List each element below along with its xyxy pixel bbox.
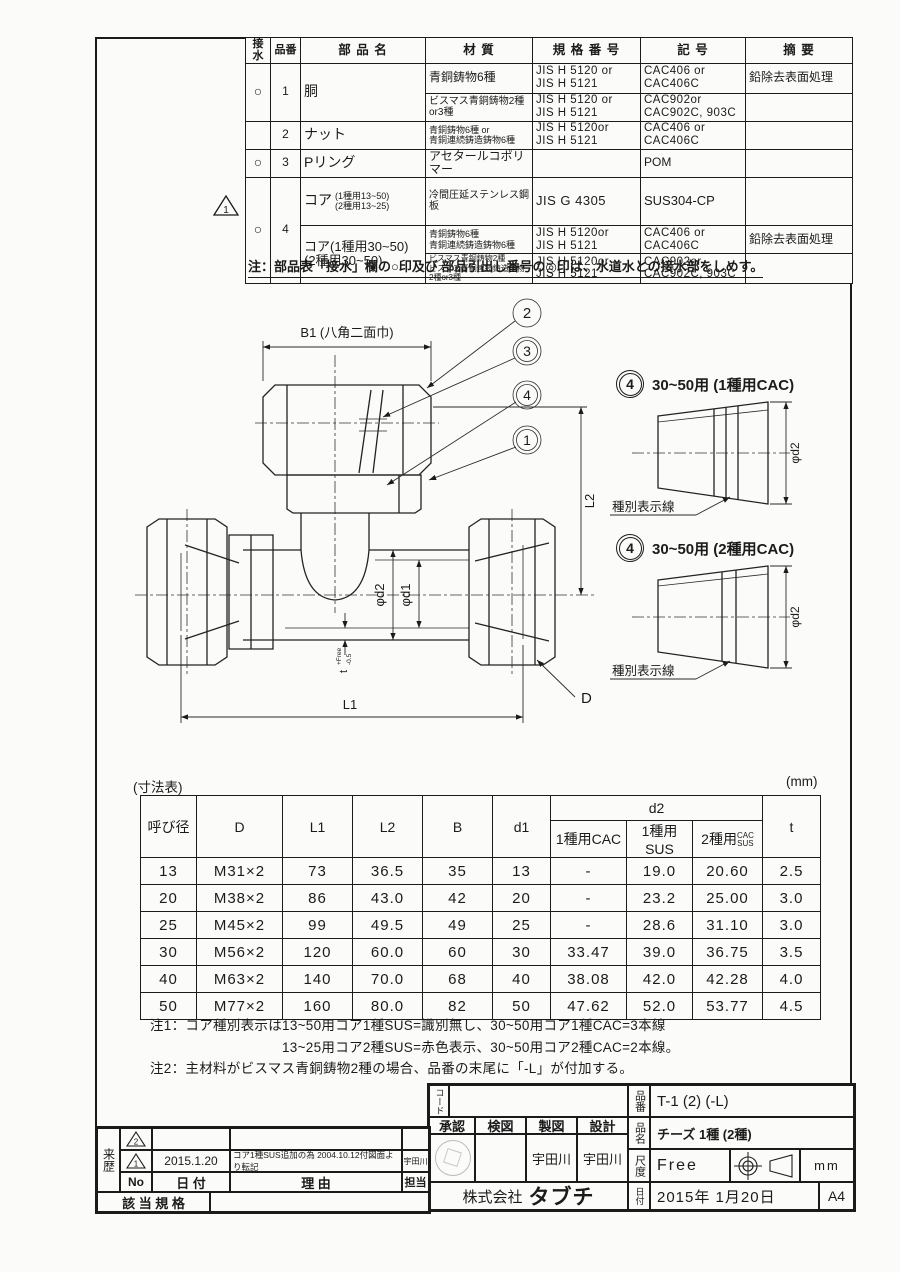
left-core-cone — [185, 545, 239, 563]
revision-tanto-cell — [402, 1128, 429, 1150]
dimension-table-unit: (mm) — [786, 774, 817, 789]
dim-table-cell: M45×2 — [197, 912, 283, 939]
dim-table-cell: 49 — [423, 912, 493, 939]
dim-table-cell: M31×2 — [197, 858, 283, 885]
phid1-label: φd1 — [398, 584, 413, 607]
dim-table-cell: 36.5 — [353, 858, 423, 885]
svg-text:4: 4 — [523, 387, 531, 403]
unit-value: mm — [800, 1149, 854, 1182]
dim-header-d1: d1 — [493, 796, 551, 858]
draft-name: 宇田川 — [526, 1134, 577, 1182]
dim-table-cell: 4.0 — [763, 966, 821, 993]
svg-text:1: 1 — [134, 1159, 139, 1168]
sheet-size: A4 — [819, 1182, 854, 1210]
scale-label: 尺度 — [628, 1149, 650, 1182]
part-name: コア (1種用13~50) (2種用13~25) — [301, 177, 426, 226]
type-line-note: 種別表示線 — [612, 663, 675, 678]
revision-header-reason: 理 由 — [230, 1172, 402, 1192]
dim-table-cell: 20.60 — [693, 858, 763, 885]
dim-table-cell: 35 — [423, 858, 493, 885]
col-header-name: 部 品 名 — [301, 38, 426, 64]
dim-table-cell: 20 — [493, 885, 551, 912]
col-header-sym: 記 号 — [641, 38, 746, 64]
dim-table-cell: 68 — [423, 966, 493, 993]
dim-table-cell: 60.0 — [353, 939, 423, 966]
dim-table-cell: 39.0 — [627, 939, 693, 966]
dim-table-cell: 3.0 — [763, 885, 821, 912]
part-name-range: (1種用13~50) (2種用13~25) — [335, 191, 389, 212]
dim-table-cell: 33.47 — [551, 939, 627, 966]
dim-table-row: 20M38×28643.04220-23.225.003.0 — [141, 885, 821, 912]
scale-value: Free — [650, 1149, 730, 1182]
title-block: コード 品番 T-1 (2) (-L) 承認 検図 製図 設計 宇田川 宇田川 … — [427, 1083, 856, 1212]
check-value — [475, 1134, 526, 1182]
dim-table-cell: 53.77 — [693, 993, 763, 1020]
standard-number: JIS H 5120 or JIS H 5121 — [533, 93, 641, 121]
date-value: 2015年 1月20日 — [650, 1182, 819, 1210]
revision-triangle-1: 1 — [212, 194, 240, 218]
part-name: Pリング — [301, 149, 426, 177]
dim-table-cell: 40 — [141, 966, 197, 993]
dim-table-cell: 43.0 — [353, 885, 423, 912]
dim-table-cell: 36.75 — [693, 939, 763, 966]
dim-table-cell: 42 — [423, 885, 493, 912]
dim-table-cell: 19.0 — [627, 858, 693, 885]
dim-header-L2: L2 — [353, 796, 423, 858]
dim-header-d2-cac1: 1種用CAC — [551, 821, 627, 858]
dim-table-cell: 42.28 — [693, 966, 763, 993]
part-number: 1 — [271, 63, 301, 121]
dim-header-B: B — [423, 796, 493, 858]
symbol: CAC406 or CAC406C — [641, 63, 746, 93]
part-name-main: コア — [304, 193, 332, 209]
dim-table-cell: 13 — [141, 858, 197, 885]
sessui-mark — [246, 121, 271, 149]
note-1-line-1: 注1：コア種別表示は13~50用コア1種SUS=識別無し、30~50用コア1種C… — [150, 1014, 666, 1034]
material: 青銅鋳物6種 or 青銅連続鋳造鋳物6種 — [426, 121, 533, 149]
revision-date-cell: 2015.1.20 — [152, 1150, 230, 1172]
revision-header-no: No — [120, 1172, 152, 1192]
part-name-value: チーズ 1種 (2種) — [650, 1117, 854, 1149]
drawing-sheet: 接水 品番 部 品 名 材 質 規 格 番 号 記 号 摘 要 ○ 1 胴 青銅… — [0, 0, 900, 1272]
svg-text:2: 2 — [523, 305, 531, 322]
dim-table-cell: 120 — [283, 939, 353, 966]
note-2: 注2：主材料がビスマス青銅鋳物2種の場合、品番の末尾に「-L」が付加する。 — [150, 1057, 633, 1077]
symbol: CAC902or CAC902C, 903C — [641, 93, 746, 121]
revision-no-cell: 1 — [120, 1150, 152, 1172]
svg-text:+Free: +Free — [336, 647, 343, 665]
dim-table-cell: - — [551, 858, 627, 885]
phid2-label: φd2 — [788, 606, 802, 627]
dim-table-cell: M63×2 — [197, 966, 283, 993]
part-number-label: 品番 — [628, 1085, 650, 1117]
part-name: ナット — [301, 121, 426, 149]
dim-header-D: D — [197, 796, 283, 858]
remark: 鉛除去表面処理 — [746, 63, 853, 93]
svg-text:3: 3 — [523, 343, 531, 359]
dim-table-cell: 70.0 — [353, 966, 423, 993]
standard-number: JIS H 5120or JIS H 5121 — [533, 226, 641, 254]
phid2-label: φd2 — [372, 584, 387, 607]
code-value — [449, 1085, 628, 1117]
svg-text:1: 1 — [523, 432, 531, 448]
branch-collar — [287, 475, 421, 513]
b1-dimension-label: B1 (八角二面巾) — [300, 325, 393, 340]
dim-table-cell: 30 — [141, 939, 197, 966]
material: 冷間圧延ステンレス鋼板 — [426, 177, 533, 226]
sessui-mark: ○ — [246, 149, 271, 177]
first-angle-projection-icon — [732, 1151, 798, 1181]
draft-label: 製図 — [526, 1117, 577, 1134]
revision-tanto-cell: 宇田川 — [402, 1150, 429, 1172]
l1-dimension-label: L1 — [343, 697, 357, 712]
revision-date-cell — [152, 1128, 230, 1150]
dim-header-d2-type2: 2種用CACSUS — [693, 821, 763, 858]
revision-reason-cell: コア1種SUS追加の為 2004.10.12付図面より転記 — [230, 1150, 402, 1172]
part-name: 胴 — [301, 63, 426, 121]
dim-header-L1: L1 — [283, 796, 353, 858]
core-cone-line — [359, 390, 371, 473]
applicable-standard-label: 該 当 規 格 — [97, 1192, 210, 1212]
date-label: 日付 — [628, 1182, 650, 1210]
design-label: 設計 — [577, 1117, 628, 1134]
svg-text:-0.5: -0.5 — [346, 653, 353, 665]
dim-table-cell: 31.10 — [693, 912, 763, 939]
dim-table-cell: 20 — [141, 885, 197, 912]
dim-header-size: 呼び径 — [141, 796, 197, 858]
note-1-line-2: 13~25用コア2種SUS=赤色表示、30~50用コア2種CAC=2本線。 — [282, 1036, 679, 1056]
symbol: CAC406 or CAC406C — [641, 121, 746, 149]
part-number-value: T-1 (2) (-L) — [650, 1085, 854, 1117]
dim-table-cell: M56×2 — [197, 939, 283, 966]
symbol: SUS304-CP — [641, 177, 746, 226]
part-number: 3 — [271, 149, 301, 177]
dim-table-cell: 3.0 — [763, 912, 821, 939]
dim-table-cell: 42.0 — [627, 966, 693, 993]
revision-no-cell: 2 — [120, 1128, 152, 1150]
dim-table-cell: 60 — [423, 939, 493, 966]
parts-table-note: 注：部品表「接水」欄の○印及び 部品引出し番号の◎印は、水道水との接水部をしめす… — [248, 256, 763, 278]
symbol: CAC406 or CAC406C — [641, 226, 746, 254]
top-nut-outline — [263, 385, 431, 475]
dim-table-row: 25M45×29949.54925-28.631.103.0 — [141, 912, 821, 939]
type-line-note: 種別表示線 — [612, 499, 675, 514]
revision-label: 来歴 — [97, 1128, 120, 1192]
sessui-mark: ○ — [246, 63, 271, 121]
dim-table-cell: 140 — [283, 966, 353, 993]
part-number: 2 — [271, 121, 301, 149]
dim-header-t: t — [763, 796, 821, 858]
dimension-table: 呼び径 D L1 L2 B d1 d2 t 1種用CAC 1種用SUS 2種用C… — [140, 795, 821, 1020]
svg-text:1: 1 — [223, 205, 229, 216]
dim-header-d2-sus1: 1種用SUS — [627, 821, 693, 858]
dim-table-cell: 2.5 — [763, 858, 821, 885]
remark — [746, 121, 853, 149]
projection-symbol-cell — [730, 1149, 800, 1182]
d-thread-label: D — [581, 690, 592, 707]
remark — [746, 149, 853, 177]
core-detail-1-drawing: φd2 種別表示線 — [610, 392, 855, 517]
applicable-standard-value — [210, 1192, 429, 1212]
parts-table: 接水 品番 部 品 名 材 質 規 格 番 号 記 号 摘 要 ○ 1 胴 青銅… — [245, 37, 853, 284]
dim-table-cell: 40 — [493, 966, 551, 993]
approve-label: 承認 — [429, 1117, 475, 1134]
dim-table-cell: 23.2 — [627, 885, 693, 912]
dim-table-cell: 25.00 — [693, 885, 763, 912]
code-label: コード — [429, 1085, 449, 1117]
material: ビスマス青銅鋳物2種or3種 — [426, 93, 533, 121]
dim-table-row: 13M31×27336.53513-19.020.602.5 — [141, 858, 821, 885]
symbol: POM — [641, 149, 746, 177]
phid2-label: φd2 — [788, 442, 802, 463]
revision-header-date: 日 付 — [152, 1172, 230, 1192]
core-detail-2-drawing: φd2 種別表示線 — [610, 556, 855, 681]
t-dimension-label: t +Free -0.5 — [336, 647, 353, 673]
col-header-mat: 材 質 — [426, 38, 533, 64]
material: アセタールコポリマー — [426, 149, 533, 177]
revision-triangle-1: 1 — [126, 1153, 146, 1170]
dim-table-cell: - — [551, 885, 627, 912]
dim-table-cell: 25 — [141, 912, 197, 939]
dim-table-row: 40M63×214070.0684038.0842.042.284.0 — [141, 966, 821, 993]
approval-stamp — [435, 1140, 471, 1176]
col-header-sessui: 接水 — [246, 38, 271, 64]
dim-table-cell: - — [551, 912, 627, 939]
remark: 鉛除去表面処理 — [746, 226, 853, 254]
dim-table-row: 30M56×212060.0603033.4739.036.753.5 — [141, 939, 821, 966]
check-label: 検図 — [475, 1117, 526, 1134]
dim-table-cell: 73 — [283, 858, 353, 885]
standard-number: JIS H 5120or JIS H 5121 — [533, 121, 641, 149]
remark — [746, 93, 853, 121]
svg-text:t: t — [338, 670, 350, 673]
col-header-hinban: 品番 — [271, 38, 301, 64]
dim-table-cell: 86 — [283, 885, 353, 912]
company-name: 株式会社 タブチ — [429, 1182, 628, 1210]
dim-table-cell: 13 — [493, 858, 551, 885]
material: 青銅鋳物6種 — [426, 63, 533, 93]
standard-number — [533, 149, 641, 177]
remark — [746, 177, 853, 226]
col-header-std: 規 格 番 号 — [533, 38, 641, 64]
dim-table-cell: 99 — [283, 912, 353, 939]
dim-table-cell: 49.5 — [353, 912, 423, 939]
dimension-table-caption: (寸法表) — [133, 776, 183, 796]
l2-dimension-label: L2 — [582, 494, 597, 508]
col-header-rem: 摘 要 — [746, 38, 853, 64]
dim-table-cell: M38×2 — [197, 885, 283, 912]
dim-table-cell: 3.5 — [763, 939, 821, 966]
approve-stamp-cell — [429, 1134, 475, 1182]
revision-reason-cell — [230, 1128, 402, 1150]
material: 青銅鋳物6種 青銅連続鋳造鋳物6種 — [426, 226, 533, 254]
revision-triangle-2: 2 — [126, 1131, 146, 1148]
svg-text:2: 2 — [134, 1137, 139, 1146]
revision-history-block: 来歴 2 1 2015.1.20 コア1種SUS追加の為 2004.10.12付… — [95, 1126, 431, 1214]
dim-header-d2: d2 — [551, 796, 763, 821]
revision-header-tanto: 担当 — [402, 1172, 429, 1192]
dim-table-cell: 38.08 — [551, 966, 627, 993]
standard-number: JIS G 4305 — [533, 177, 641, 226]
dim-table-cell: 25 — [493, 912, 551, 939]
design-name: 宇田川 — [577, 1134, 628, 1182]
part-name-label: 品名 — [628, 1117, 650, 1149]
dim-table-cell: 28.6 — [627, 912, 693, 939]
tee-fitting-section-drawing: B1 (八角二面巾) 2 3 4 1 L2 φd2 φd1 t +Free -0… — [135, 295, 615, 750]
dim-table-cell: 30 — [493, 939, 551, 966]
dim-table-cell: 4.5 — [763, 993, 821, 1020]
standard-number: JIS H 5120 or JIS H 5121 — [533, 63, 641, 93]
